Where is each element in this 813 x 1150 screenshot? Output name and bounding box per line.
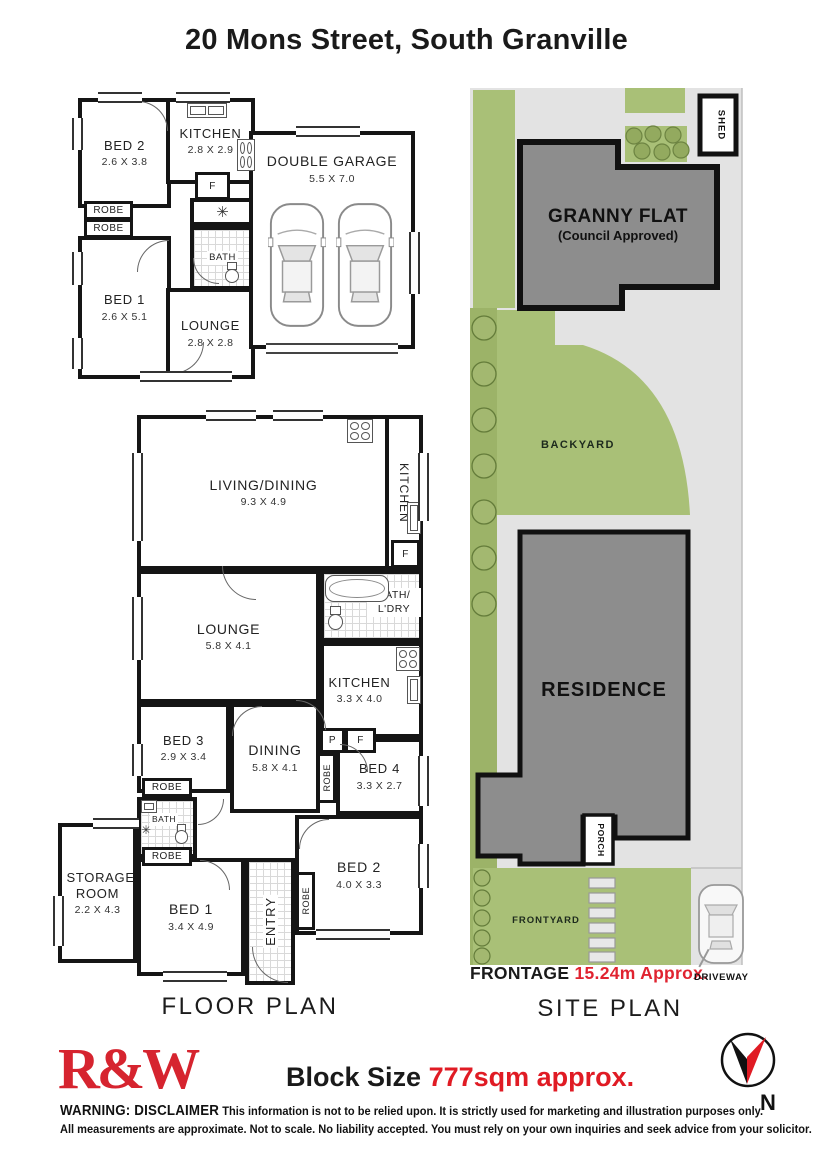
fridge-closet: F [391,540,420,568]
car-top-view [268,198,326,332]
disclaimer-line1: WARNING: DISCLAIMER This information is … [60,1103,763,1119]
window-marker [176,92,230,103]
window-marker [132,744,143,776]
frontyard-label: FRONTYARD [512,915,580,926]
stove-fixture [347,419,373,443]
window-marker [316,929,390,940]
window-marker [163,971,227,982]
robe-closet: ROBE [296,872,315,930]
floor-plan-label: FLOOR PLAN [140,993,360,1021]
window-marker [98,92,142,103]
window-marker [140,371,232,382]
residence-label: RESIDENCE [541,679,667,701]
frontyard-grass [473,868,691,965]
tree-band [470,308,497,965]
window-marker [418,844,429,888]
window-marker [72,338,83,369]
frontage-value: 15.24m Approx. [574,963,708,983]
toilet-fixture [327,606,344,630]
site-plan: SHED GRANNY FLAT (Council Approved) BACK… [470,88,748,965]
granny-flat-label: GRANNY FLAT [548,206,688,227]
window-marker [72,118,83,150]
stove-fixture [396,647,420,671]
disclaimer-warning: WARNING: DISCLAIMER [60,1103,219,1119]
door-arc [198,799,224,825]
gf-robe-closet: ROBE [84,201,133,220]
room-gf-laundry-nook: ✳ [190,198,255,226]
window-marker [132,597,143,660]
room-storage: STORAGE ROOM 2.2 X 4.3 [58,823,137,963]
granny-flat-sublabel: (Council Approved) [558,228,678,243]
vanity-sink-fixture [141,800,157,813]
window-marker [409,232,420,294]
robe-closet: ROBE [317,753,336,803]
room-bed1-main: BED 1 3.4 X 4.9 [137,858,245,976]
window-marker [53,896,64,946]
shed-label: SHED [715,110,726,140]
gf-fridge-closet: F [195,172,230,200]
porch-label: PORCH [596,823,606,856]
block-size-value: 777sqm approx. [429,1062,635,1092]
toilet-fixture [224,262,240,283]
window-marker [418,453,429,521]
disclaimer-line2: All measurements are approximate. Not to… [60,1122,812,1136]
robe-closet: ROBE [142,847,192,866]
fan-light-icon: ✳ [141,824,151,836]
window-marker [93,818,139,829]
page-title: 20 Mons Street, South Granville [0,24,813,57]
fan-light-icon: ✳ [216,205,229,220]
site-plan-label: SITE PLAN [520,995,700,1023]
grass-strip [473,90,515,308]
floorplan-page: 20 Mons Street, South Granville BED 2 2.… [0,0,813,1150]
robe-closet: ROBE [142,778,192,797]
frontage-note: FRONTAGE 15.24m Approx. [470,963,708,984]
rw-logo: R&W [58,1040,197,1098]
toilet-fixture [174,824,189,844]
block-size: Block Size 777sqm approx. [286,1062,634,1093]
driveway-label: DRIVEWAY [694,972,749,983]
room-lounge: LOUNGE 5.8 X 4.1 [137,570,320,703]
kitchen-sink-fixture [407,676,421,704]
garage-door [266,343,398,354]
window-marker [273,410,323,421]
gf-robe-closet: ROBE [84,219,133,238]
window-marker [72,252,83,285]
backyard-label: BACKYARD [541,439,615,451]
block-size-label: Block Size [286,1062,421,1092]
car-top-view [336,198,394,332]
grass-strip [625,88,685,113]
window-marker [206,410,256,421]
kitchen-sink-fixture [187,103,227,118]
stove-fixture [237,139,255,171]
window-marker [132,453,143,541]
bathtub-fixture [325,575,389,602]
tree-icons [474,870,490,964]
window-marker [296,126,360,137]
window-marker [418,756,429,806]
frontage-label: FRONTAGE [470,963,569,983]
